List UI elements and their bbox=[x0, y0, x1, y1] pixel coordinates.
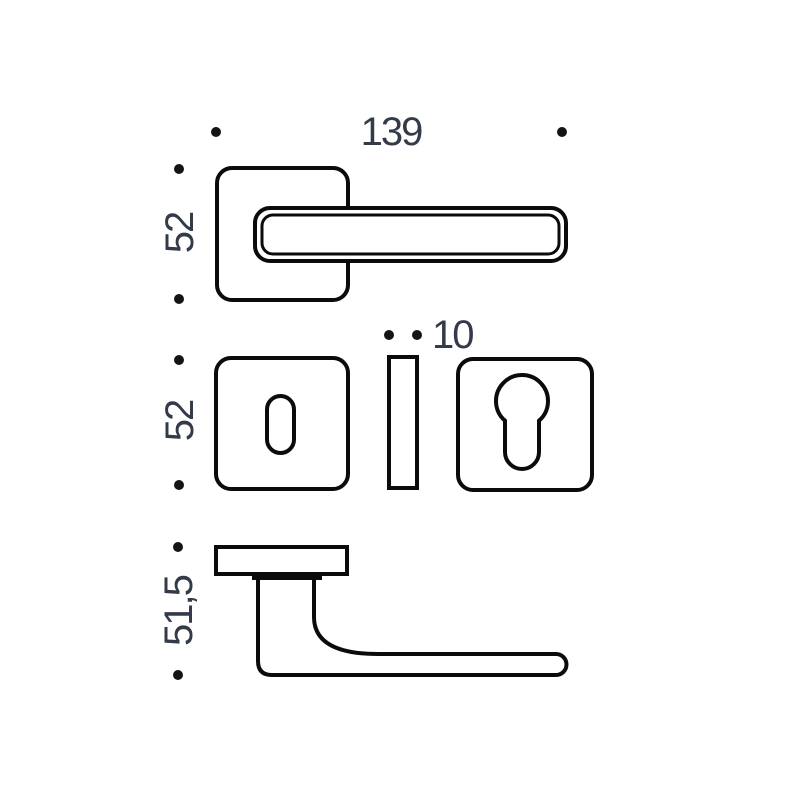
side-rosette-profile bbox=[216, 547, 347, 574]
dimension-dot bbox=[174, 480, 184, 490]
side-height-dimension: 51,5 bbox=[157, 575, 201, 646]
drawing-canvas: 139 52 10 52 bbox=[0, 0, 800, 800]
euro-cylinder-keyway bbox=[496, 375, 548, 469]
front-height-dimension: 52 bbox=[158, 212, 202, 253]
dimension-dot bbox=[174, 355, 184, 365]
escutcheon-side-profile bbox=[389, 357, 417, 488]
escutcheon-thickness-dimension: 10 bbox=[432, 313, 473, 357]
dimension-dot bbox=[173, 542, 183, 552]
side-view: 51,5 bbox=[157, 542, 566, 680]
dimension-dot bbox=[174, 164, 184, 174]
rosette-neck-junction bbox=[252, 572, 322, 580]
dimension-dot bbox=[174, 294, 184, 304]
dimension-dot bbox=[211, 127, 221, 137]
escutcheons-view: 10 52 bbox=[158, 313, 592, 490]
dimension-dot bbox=[173, 670, 183, 680]
escutcheon-height-dimension: 52 bbox=[158, 400, 202, 441]
front-width-dimension: 139 bbox=[361, 110, 422, 154]
handle-technical-drawing: 139 52 10 52 bbox=[0, 0, 800, 800]
front-view: 139 52 bbox=[158, 110, 567, 304]
dimension-dot bbox=[557, 127, 567, 137]
keyhole-oval bbox=[267, 396, 294, 453]
dimension-dot bbox=[412, 330, 422, 340]
dimension-dot bbox=[384, 330, 394, 340]
lever-side-profile bbox=[258, 578, 566, 675]
